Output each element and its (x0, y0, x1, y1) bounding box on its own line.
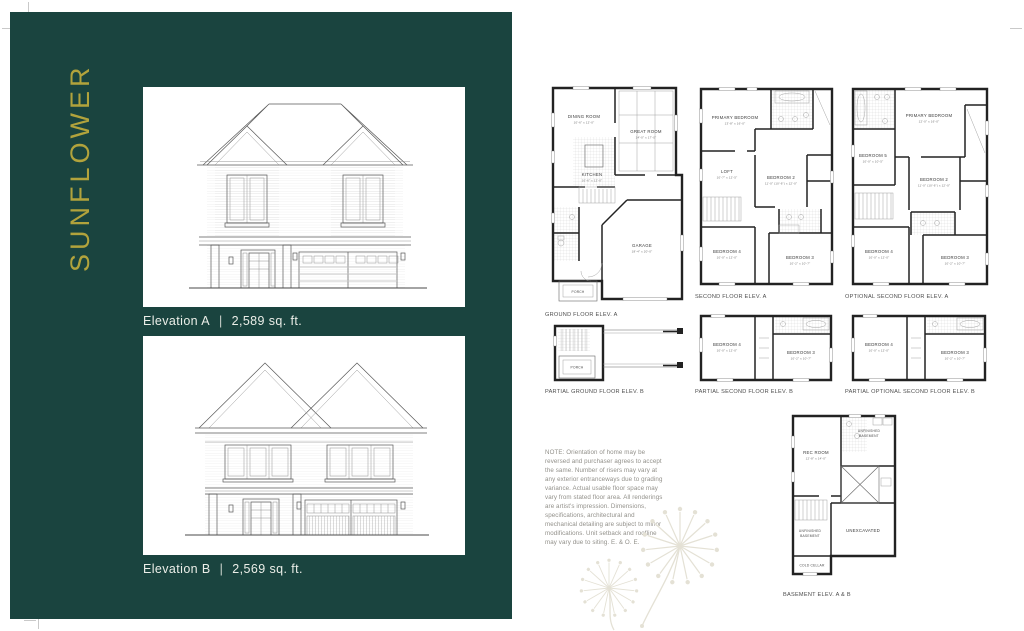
room-label: COLD CELLAR (799, 564, 825, 568)
elevation-a-caption: Elevation A | 2,589 sq. ft. (143, 314, 302, 328)
room-label: BASEMENT (800, 534, 820, 538)
plan-caption: SECOND FLOOR ELEV. A (695, 294, 838, 300)
room-label: REC ROOM (803, 450, 829, 455)
model-panel: SUNFLOWER (10, 12, 512, 619)
room-label: KITCHEN (582, 172, 603, 177)
room-label: LOFT (721, 169, 733, 174)
plan-caption: OPTIONAL SECOND FLOOR ELEV. A (845, 294, 993, 300)
room-label: BEDROOM 3 (787, 350, 815, 355)
room-label: BEDROOM 3 (786, 255, 814, 260)
elevation-a-card (143, 87, 465, 307)
room-label: BEDROOM 4 (713, 342, 741, 347)
elevation-b-card (143, 336, 465, 555)
crop-mark (1010, 28, 1022, 29)
room-label: PRIMARY BEDROOM (906, 113, 953, 118)
room-label: BEDROOM 4 (713, 249, 741, 254)
elevation-b-drawing (143, 336, 465, 554)
room-dim: 10'-2" x 10'-7" (791, 357, 812, 361)
room-dim: 10'-2" x 10'-7" (945, 357, 966, 361)
caption-divider: | (220, 562, 224, 576)
room-label: BEDROOM 2 (767, 175, 795, 180)
room-label: GARAGE (632, 243, 652, 248)
crop-mark (24, 620, 36, 621)
model-name: SUNFLOWER (65, 72, 101, 272)
room-label: PORCH (571, 366, 584, 370)
room-dim: 10'-6" x 12'-0" (574, 121, 595, 125)
elevation-a-drawing (143, 87, 465, 307)
floor-plan-partial-ground-b: PORCH PARTIAL GROUND FLOOR ELEV. B (545, 320, 685, 395)
room-dim: 10'-0" x 12'-0" (869, 349, 890, 353)
room-label: GREAT ROOM (630, 129, 662, 134)
floor-plan-second-a: PRIMARY BEDROOM 13'-8" x 16'-0" LOFT 10'… (695, 85, 838, 300)
room-dim: 10'-2" x 10'-7" (790, 262, 811, 266)
room-dim: 10'-2" x 10'-7" (945, 262, 966, 266)
basement-drawing: REC ROOM 12'-8" x 14'-0" UNFINISHED BASE… (783, 408, 907, 589)
house-elevation-b (185, 363, 429, 535)
room-label: BASEMENT (859, 434, 879, 438)
elevation-b-caption: Elevation B | 2,569 sq. ft. (143, 562, 303, 576)
dandelion-heads (580, 507, 720, 630)
partial-optional-b-drawing: BEDROOM 4 10'-0" x 12'-0" BEDROOM 3 10'-… (845, 308, 993, 386)
floor-plan-partial-optional-b: BEDROOM 4 10'-0" x 12'-0" BEDROOM 3 10'-… (845, 308, 993, 395)
plan-caption: BASEMENT ELEV. A & B (783, 592, 907, 598)
plan-detail-lines (841, 466, 879, 503)
floor-plan-basement: REC ROOM 12'-8" x 14'-0" UNFINISHED BASE… (783, 408, 907, 598)
room-dim: 18'-4" x 20'-0" (632, 250, 653, 254)
room-dim: 10'-0" x 12'-0" (869, 256, 890, 260)
room-dim: 13'-8" x 16'-0" (725, 122, 746, 126)
room-label: BEDROOM 5 (859, 153, 887, 158)
brochure-page: SUNFLOWER (0, 0, 1024, 631)
house-elevation-a (189, 104, 427, 288)
room-dim: 10'-0" x 12'-0" (717, 256, 738, 260)
room-dim: 10'-0" x 12'-0" (717, 349, 738, 353)
room-label: UNEXCAVATED (846, 528, 880, 533)
room-label: PORCH (572, 290, 585, 294)
room-label: UNFINISHED (858, 429, 881, 433)
floor-plan-ground-a: DINING ROOM 10'-6" x 12'-0" GREAT ROOM 1… (545, 85, 687, 318)
dandelion-decoration (552, 488, 787, 631)
room-dim: 10'-6" x 12'-0" (582, 179, 603, 183)
room-dim: 12'-8" x 14'-0" (806, 457, 827, 461)
floor-plan-optional-a: PRIMARY BEDROOM 12'-0" x 16'-0" BEDROOM … (845, 85, 993, 300)
caption-divider: | (219, 314, 223, 328)
plan-caption: GROUND FLOOR ELEV. A (545, 312, 687, 318)
room-dim: 12'-0" x 16'-0" (919, 120, 940, 124)
floor-plan-partial-second-b: BEDROOM 4 10'-0" x 12'-0" BEDROOM 3 10'-… (695, 308, 838, 395)
room-label: BEDROOM 4 (865, 342, 893, 347)
room-label: DINING ROOM (568, 114, 601, 119)
ground-floor-a-drawing: DINING ROOM 10'-6" x 12'-0" GREAT ROOM 1… (545, 85, 687, 309)
room-label: PRIMARY BEDROOM (712, 115, 759, 120)
room-dim: 11'-0" (10'-6") x 12'-0" (918, 184, 950, 188)
room-label: BEDROOM 2 (920, 177, 948, 182)
room-label: BEDROOM 3 (941, 350, 969, 355)
elevation-b-sqft: 2,569 sq. ft. (232, 562, 303, 576)
elevation-a-sqft: 2,589 sq. ft. (232, 314, 303, 328)
room-dim: 11'-0" (10'-6") x 12'-0" (765, 182, 797, 186)
room-dim: 10'-0" x 10'-5" (863, 160, 884, 164)
plan-caption: PARTIAL GROUND FLOOR ELEV. B (545, 389, 685, 395)
plan-caption: PARTIAL SECOND FLOOR ELEV. B (695, 389, 838, 395)
elevation-b-label: Elevation B (143, 562, 211, 576)
room-dim: 14'-0" x 17'-0" (636, 136, 657, 140)
elevation-a-label: Elevation A (143, 314, 210, 328)
room-dim: 10'-7" x 12'-5" (717, 176, 738, 180)
second-floor-a-drawing: PRIMARY BEDROOM 13'-8" x 16'-0" LOFT 10'… (695, 85, 838, 291)
optional-second-floor-a-drawing: PRIMARY BEDROOM 12'-0" x 16'-0" BEDROOM … (845, 85, 993, 291)
room-label: BEDROOM 4 (865, 249, 893, 254)
partial-ground-b-drawing: PORCH (545, 320, 685, 386)
plan-caption: PARTIAL OPTIONAL SECOND FLOOR ELEV. B (845, 389, 993, 395)
room-label: UNFINISHED (799, 529, 822, 533)
partial-second-b-drawing: BEDROOM 4 10'-0" x 12'-0" BEDROOM 3 10'-… (695, 308, 838, 386)
room-label: BEDROOM 3 (941, 255, 969, 260)
